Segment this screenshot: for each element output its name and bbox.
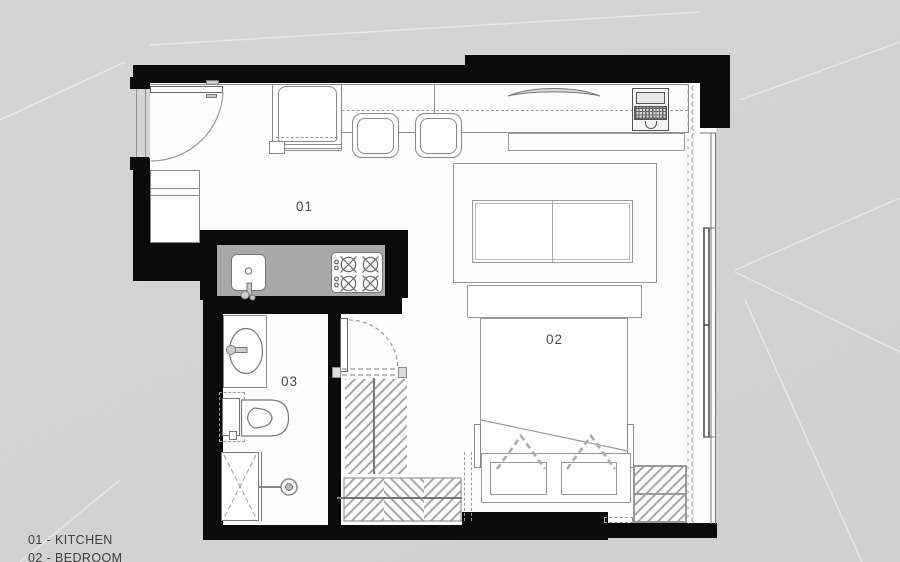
room-label-bedroom: 02 (546, 332, 563, 347)
laptop-screen (636, 92, 665, 104)
wall-top-left (133, 65, 465, 83)
kitchen-appliance-door (278, 86, 337, 142)
entry-door-frame-line (136, 89, 137, 157)
closet-opening-dashline (471, 452, 472, 521)
wall-bathroom-top (212, 296, 402, 314)
entry-door-handle (206, 94, 217, 98)
bathroom-vanity (223, 315, 267, 388)
wall-counter-right (385, 240, 408, 298)
legend-item-kitchen: 01 - KITCHEN (28, 532, 122, 550)
floor-plan: 01 02 03 01 - KITCHEN 02 - BEDROOM (0, 0, 900, 562)
bathroom-door-jamb (332, 367, 341, 378)
wall-bottom-left (212, 525, 470, 540)
entry-door-handle (206, 80, 219, 85)
bed-pillow-divider (552, 201, 553, 262)
wall-bottom-center (462, 512, 608, 540)
toilet-flush-detail (229, 431, 237, 440)
kitchen-tall-cabinet (150, 170, 200, 243)
bed-side-rail (474, 424, 481, 468)
bathroom-door-leaf (340, 318, 348, 372)
closet-opening-dashline (464, 452, 465, 521)
desk-back-line (150, 84, 688, 85)
bed-drawer (561, 462, 617, 495)
room-label-bathroom: 03 (281, 374, 298, 389)
entry-door-leaf (150, 86, 223, 93)
room-label-kitchen: 01 (296, 199, 313, 214)
wall-left (133, 158, 150, 247)
bed-drawer (490, 462, 547, 495)
bar-stool-seat (357, 118, 394, 154)
bed-headboard-shelf (467, 285, 642, 318)
legend-item-bedroom: 02 - BEDROOM (28, 550, 122, 562)
wall-right-column (700, 83, 730, 128)
bar-stool-seat (420, 118, 457, 154)
cabinet-divider-line (151, 188, 199, 189)
under-desk-cabinet (508, 133, 685, 151)
floor-window-strip (700, 128, 716, 524)
shower-screen-line (261, 452, 262, 521)
appliance-dashline (276, 137, 338, 138)
cooktop (331, 252, 383, 293)
wall-top-right (465, 55, 730, 83)
wall-counter-back (200, 230, 408, 245)
wall-bottom-right (600, 523, 717, 538)
legend: 01 - KITCHEN 02 - BEDROOM (28, 532, 122, 562)
bench-dash-detail (604, 517, 633, 523)
appliance-foot (269, 141, 285, 154)
shower-tray (221, 452, 259, 521)
door-jamb-top (130, 77, 149, 89)
kitchen-sink (231, 254, 266, 291)
bathroom-door-jamb (398, 367, 407, 378)
laptop-keyboard (634, 106, 667, 120)
entry-door-frame-line (145, 89, 146, 157)
desk-end-line (688, 84, 689, 133)
cabinet-divider-line (151, 195, 199, 196)
